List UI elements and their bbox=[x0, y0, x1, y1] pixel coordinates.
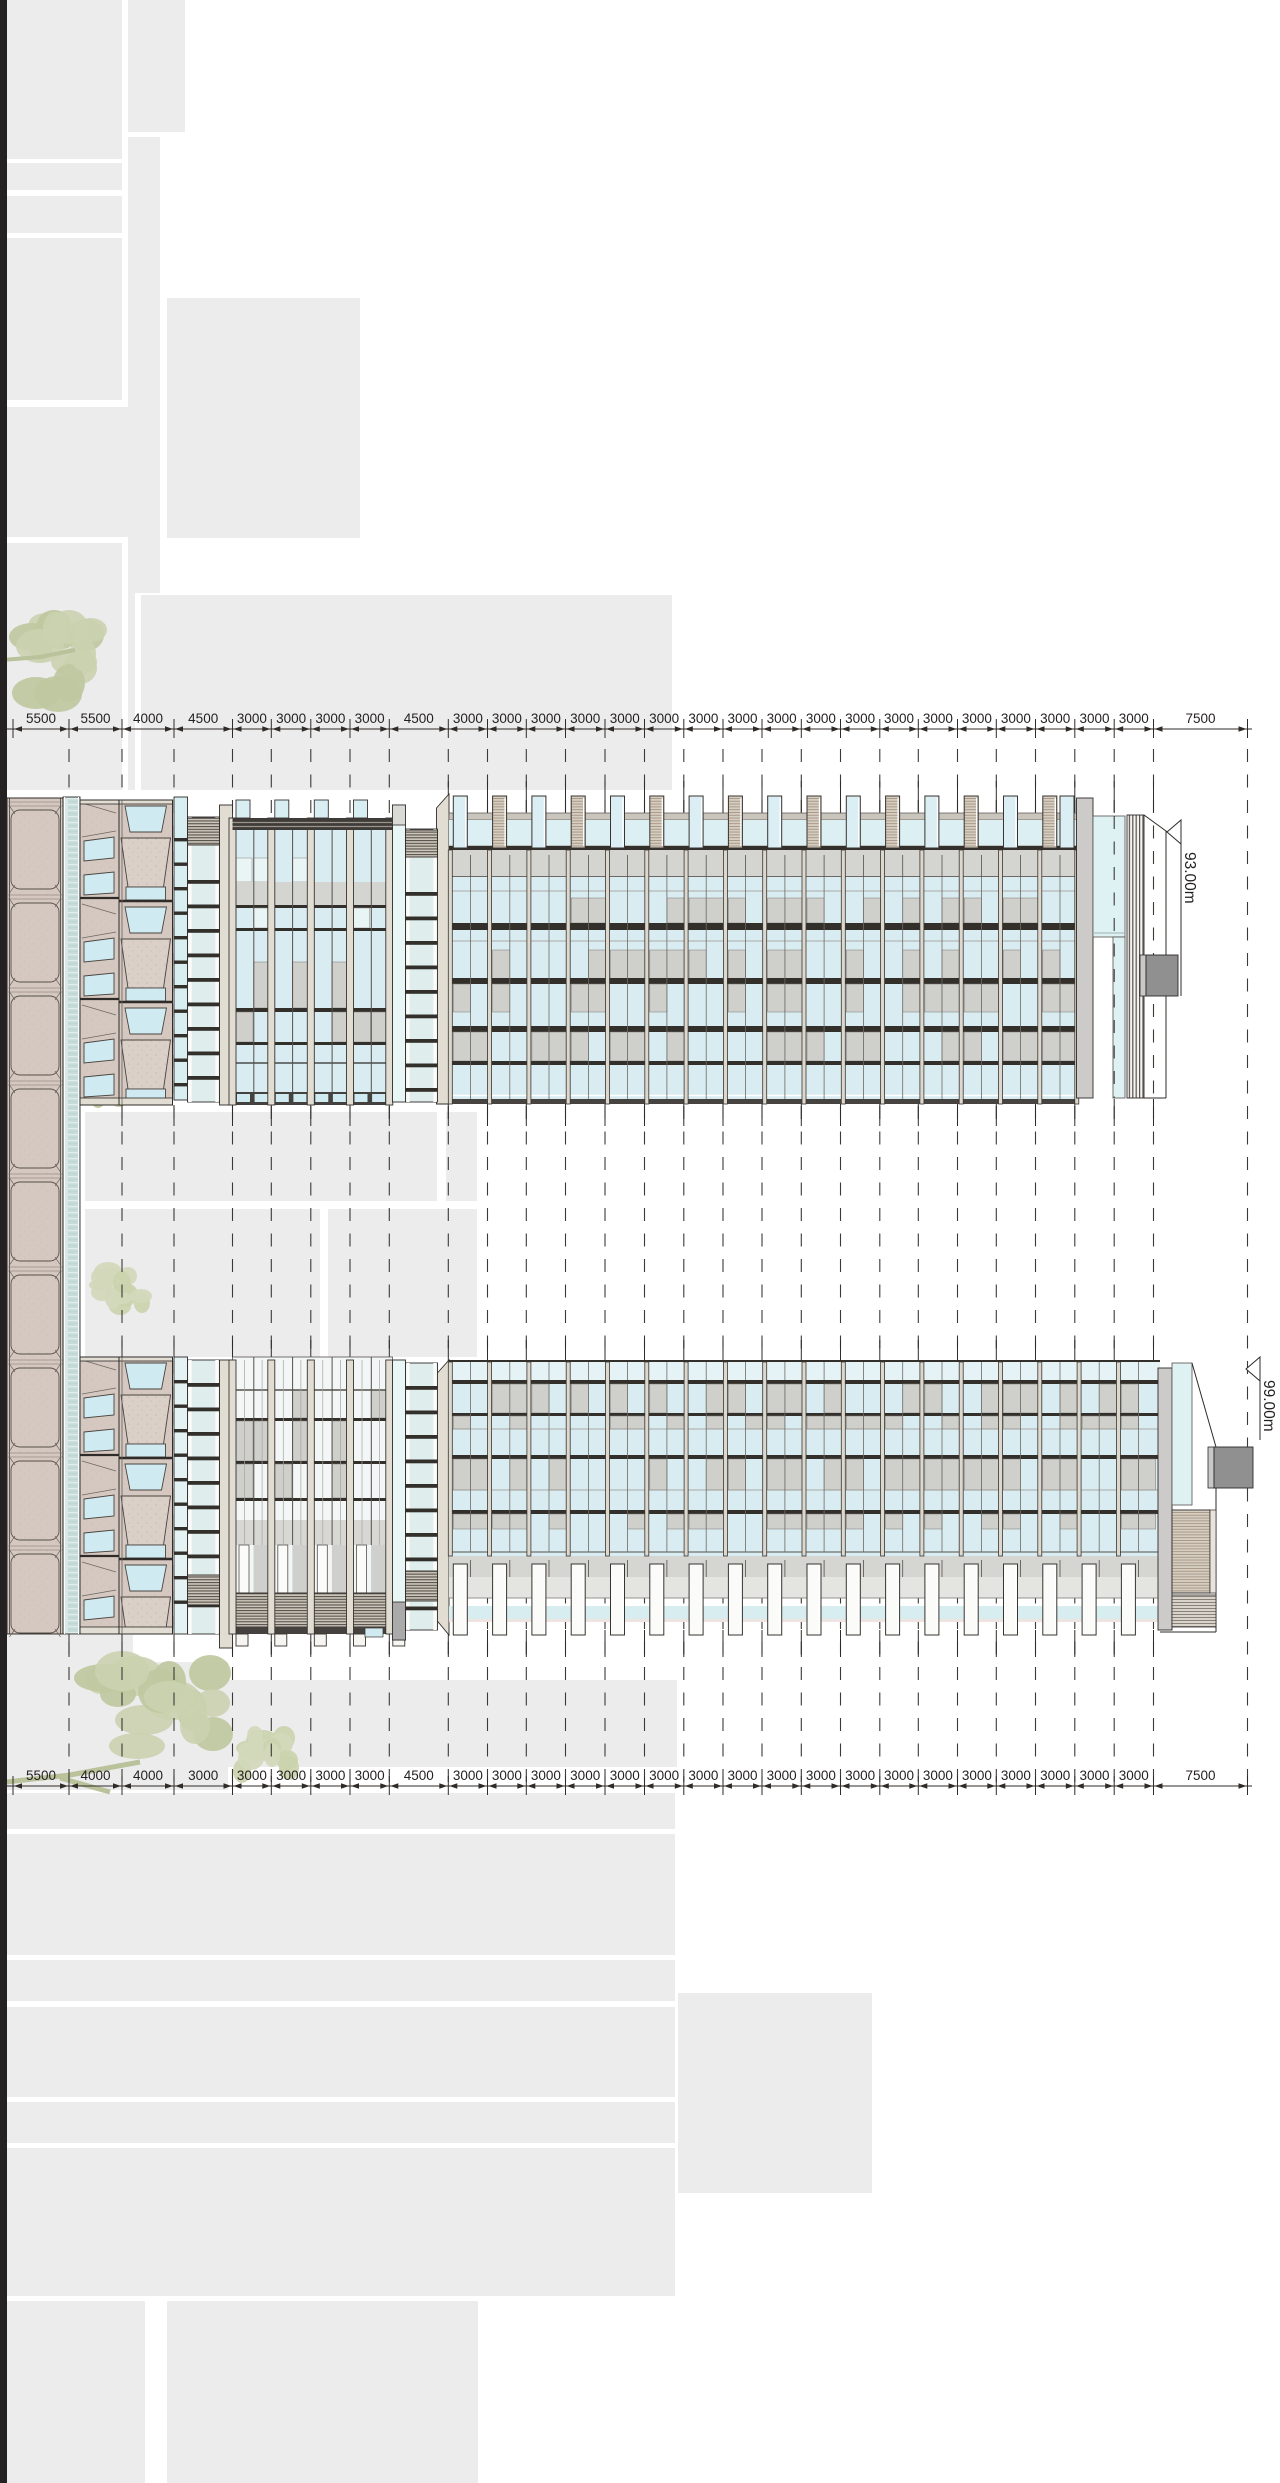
svg-text:3000: 3000 bbox=[1001, 711, 1031, 726]
svg-text:3000: 3000 bbox=[570, 711, 600, 726]
svg-text:5500: 5500 bbox=[80, 711, 110, 726]
svg-text:93.00m: 93.00m bbox=[1181, 852, 1198, 904]
svg-text:3000: 3000 bbox=[492, 1768, 522, 1783]
svg-text:3000: 3000 bbox=[276, 1768, 306, 1783]
svg-text:3000: 3000 bbox=[962, 1768, 992, 1783]
svg-text:3000: 3000 bbox=[688, 711, 718, 726]
svg-text:7500: 7500 bbox=[1185, 1768, 1215, 1783]
svg-text:4500: 4500 bbox=[404, 711, 434, 726]
svg-text:3000: 3000 bbox=[1119, 1768, 1149, 1783]
svg-text:3000: 3000 bbox=[237, 711, 267, 726]
svg-text:3000: 3000 bbox=[1040, 1768, 1070, 1783]
svg-text:4000: 4000 bbox=[133, 711, 163, 726]
svg-text:3000: 3000 bbox=[884, 711, 914, 726]
svg-text:3000: 3000 bbox=[806, 1768, 836, 1783]
svg-text:4000: 4000 bbox=[80, 1768, 110, 1783]
svg-text:3000: 3000 bbox=[188, 1768, 218, 1783]
svg-text:5500: 5500 bbox=[26, 1768, 56, 1783]
svg-text:3000: 3000 bbox=[276, 711, 306, 726]
svg-text:3000: 3000 bbox=[767, 711, 797, 726]
svg-text:3000: 3000 bbox=[923, 711, 953, 726]
svg-text:3000: 3000 bbox=[531, 1768, 561, 1783]
svg-text:3000: 3000 bbox=[1079, 1768, 1109, 1783]
svg-text:3000: 3000 bbox=[531, 711, 561, 726]
svg-text:3000: 3000 bbox=[1001, 1768, 1031, 1783]
svg-text:3000: 3000 bbox=[649, 711, 679, 726]
svg-text:7500: 7500 bbox=[1185, 711, 1215, 726]
svg-text:3000: 3000 bbox=[610, 711, 640, 726]
svg-text:3000: 3000 bbox=[315, 1768, 345, 1783]
svg-text:3000: 3000 bbox=[610, 1768, 640, 1783]
svg-text:3000: 3000 bbox=[237, 1768, 267, 1783]
svg-text:5500: 5500 bbox=[26, 711, 56, 726]
svg-text:3000: 3000 bbox=[845, 1768, 875, 1783]
svg-text:3000: 3000 bbox=[767, 1768, 797, 1783]
svg-text:3000: 3000 bbox=[688, 1768, 718, 1783]
svg-text:3000: 3000 bbox=[884, 1768, 914, 1783]
svg-text:3000: 3000 bbox=[1079, 711, 1109, 726]
svg-text:99.00m: 99.00m bbox=[1260, 1380, 1277, 1432]
svg-text:4500: 4500 bbox=[404, 1768, 434, 1783]
svg-text:3000: 3000 bbox=[727, 1768, 757, 1783]
svg-text:3000: 3000 bbox=[923, 1768, 953, 1783]
svg-text:3000: 3000 bbox=[845, 711, 875, 726]
svg-text:3000: 3000 bbox=[492, 711, 522, 726]
svg-text:3000: 3000 bbox=[649, 1768, 679, 1783]
svg-text:4500: 4500 bbox=[188, 711, 218, 726]
svg-text:3000: 3000 bbox=[962, 711, 992, 726]
svg-text:3000: 3000 bbox=[315, 711, 345, 726]
svg-text:3000: 3000 bbox=[1119, 711, 1149, 726]
svg-text:3000: 3000 bbox=[806, 711, 836, 726]
svg-text:3000: 3000 bbox=[570, 1768, 600, 1783]
svg-text:4000: 4000 bbox=[133, 1768, 163, 1783]
svg-text:3000: 3000 bbox=[727, 711, 757, 726]
svg-text:3000: 3000 bbox=[1040, 711, 1070, 726]
svg-text:3000: 3000 bbox=[355, 1768, 385, 1783]
svg-text:3000: 3000 bbox=[453, 711, 483, 726]
svg-text:3000: 3000 bbox=[453, 1768, 483, 1783]
svg-text:3000: 3000 bbox=[355, 711, 385, 726]
